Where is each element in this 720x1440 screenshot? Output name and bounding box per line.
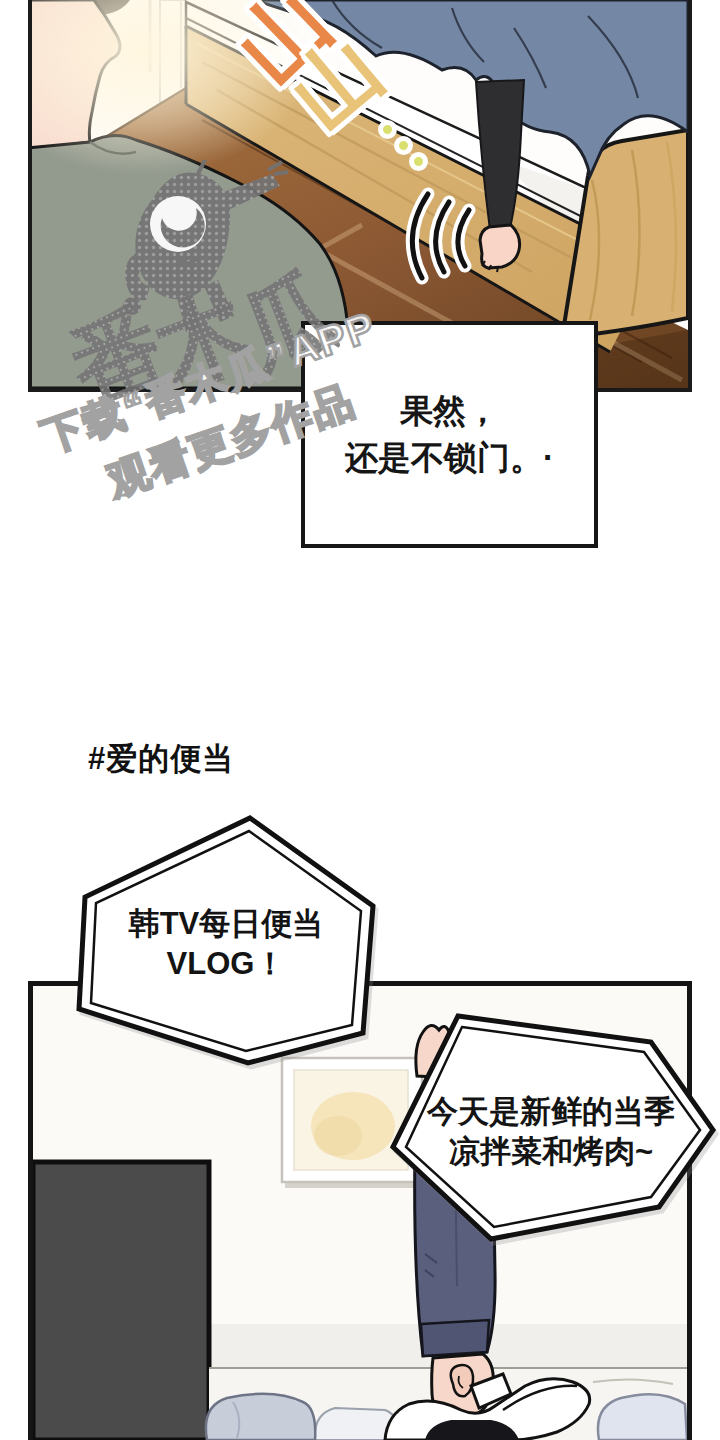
speech-box: 果然， 还是不锁门。· xyxy=(301,321,598,548)
right-pillow xyxy=(598,1394,687,1440)
speech-line: 还是不锁门。· xyxy=(345,435,554,481)
bubble-text: 韩TV每日便当 VLOG！ xyxy=(92,890,360,998)
dark-cabinet xyxy=(33,1162,209,1440)
ear xyxy=(451,1365,473,1396)
leg-stepping-down xyxy=(476,80,524,272)
hashtag-title: #爱的便当 xyxy=(88,738,234,780)
speech-line: 果然， xyxy=(400,388,499,434)
hex-bubble-vlog: 韩TV每日便当 VLOG！ xyxy=(70,810,382,1076)
pants-cuff xyxy=(421,1320,489,1356)
sfx-dot xyxy=(378,120,397,139)
bubble-text: 今天是新鲜的当季 凉拌菜和烤肉~ xyxy=(415,1084,687,1180)
sfx-dot xyxy=(409,152,428,171)
bare-foot xyxy=(480,225,520,268)
left-pillow xyxy=(206,1394,315,1440)
hex-bubble-menu: 今天是新鲜的当季 凉拌菜和烤肉~ xyxy=(385,1008,717,1248)
comic-page: 山 山 xyxy=(0,0,720,1440)
sfx-dot xyxy=(394,136,413,155)
